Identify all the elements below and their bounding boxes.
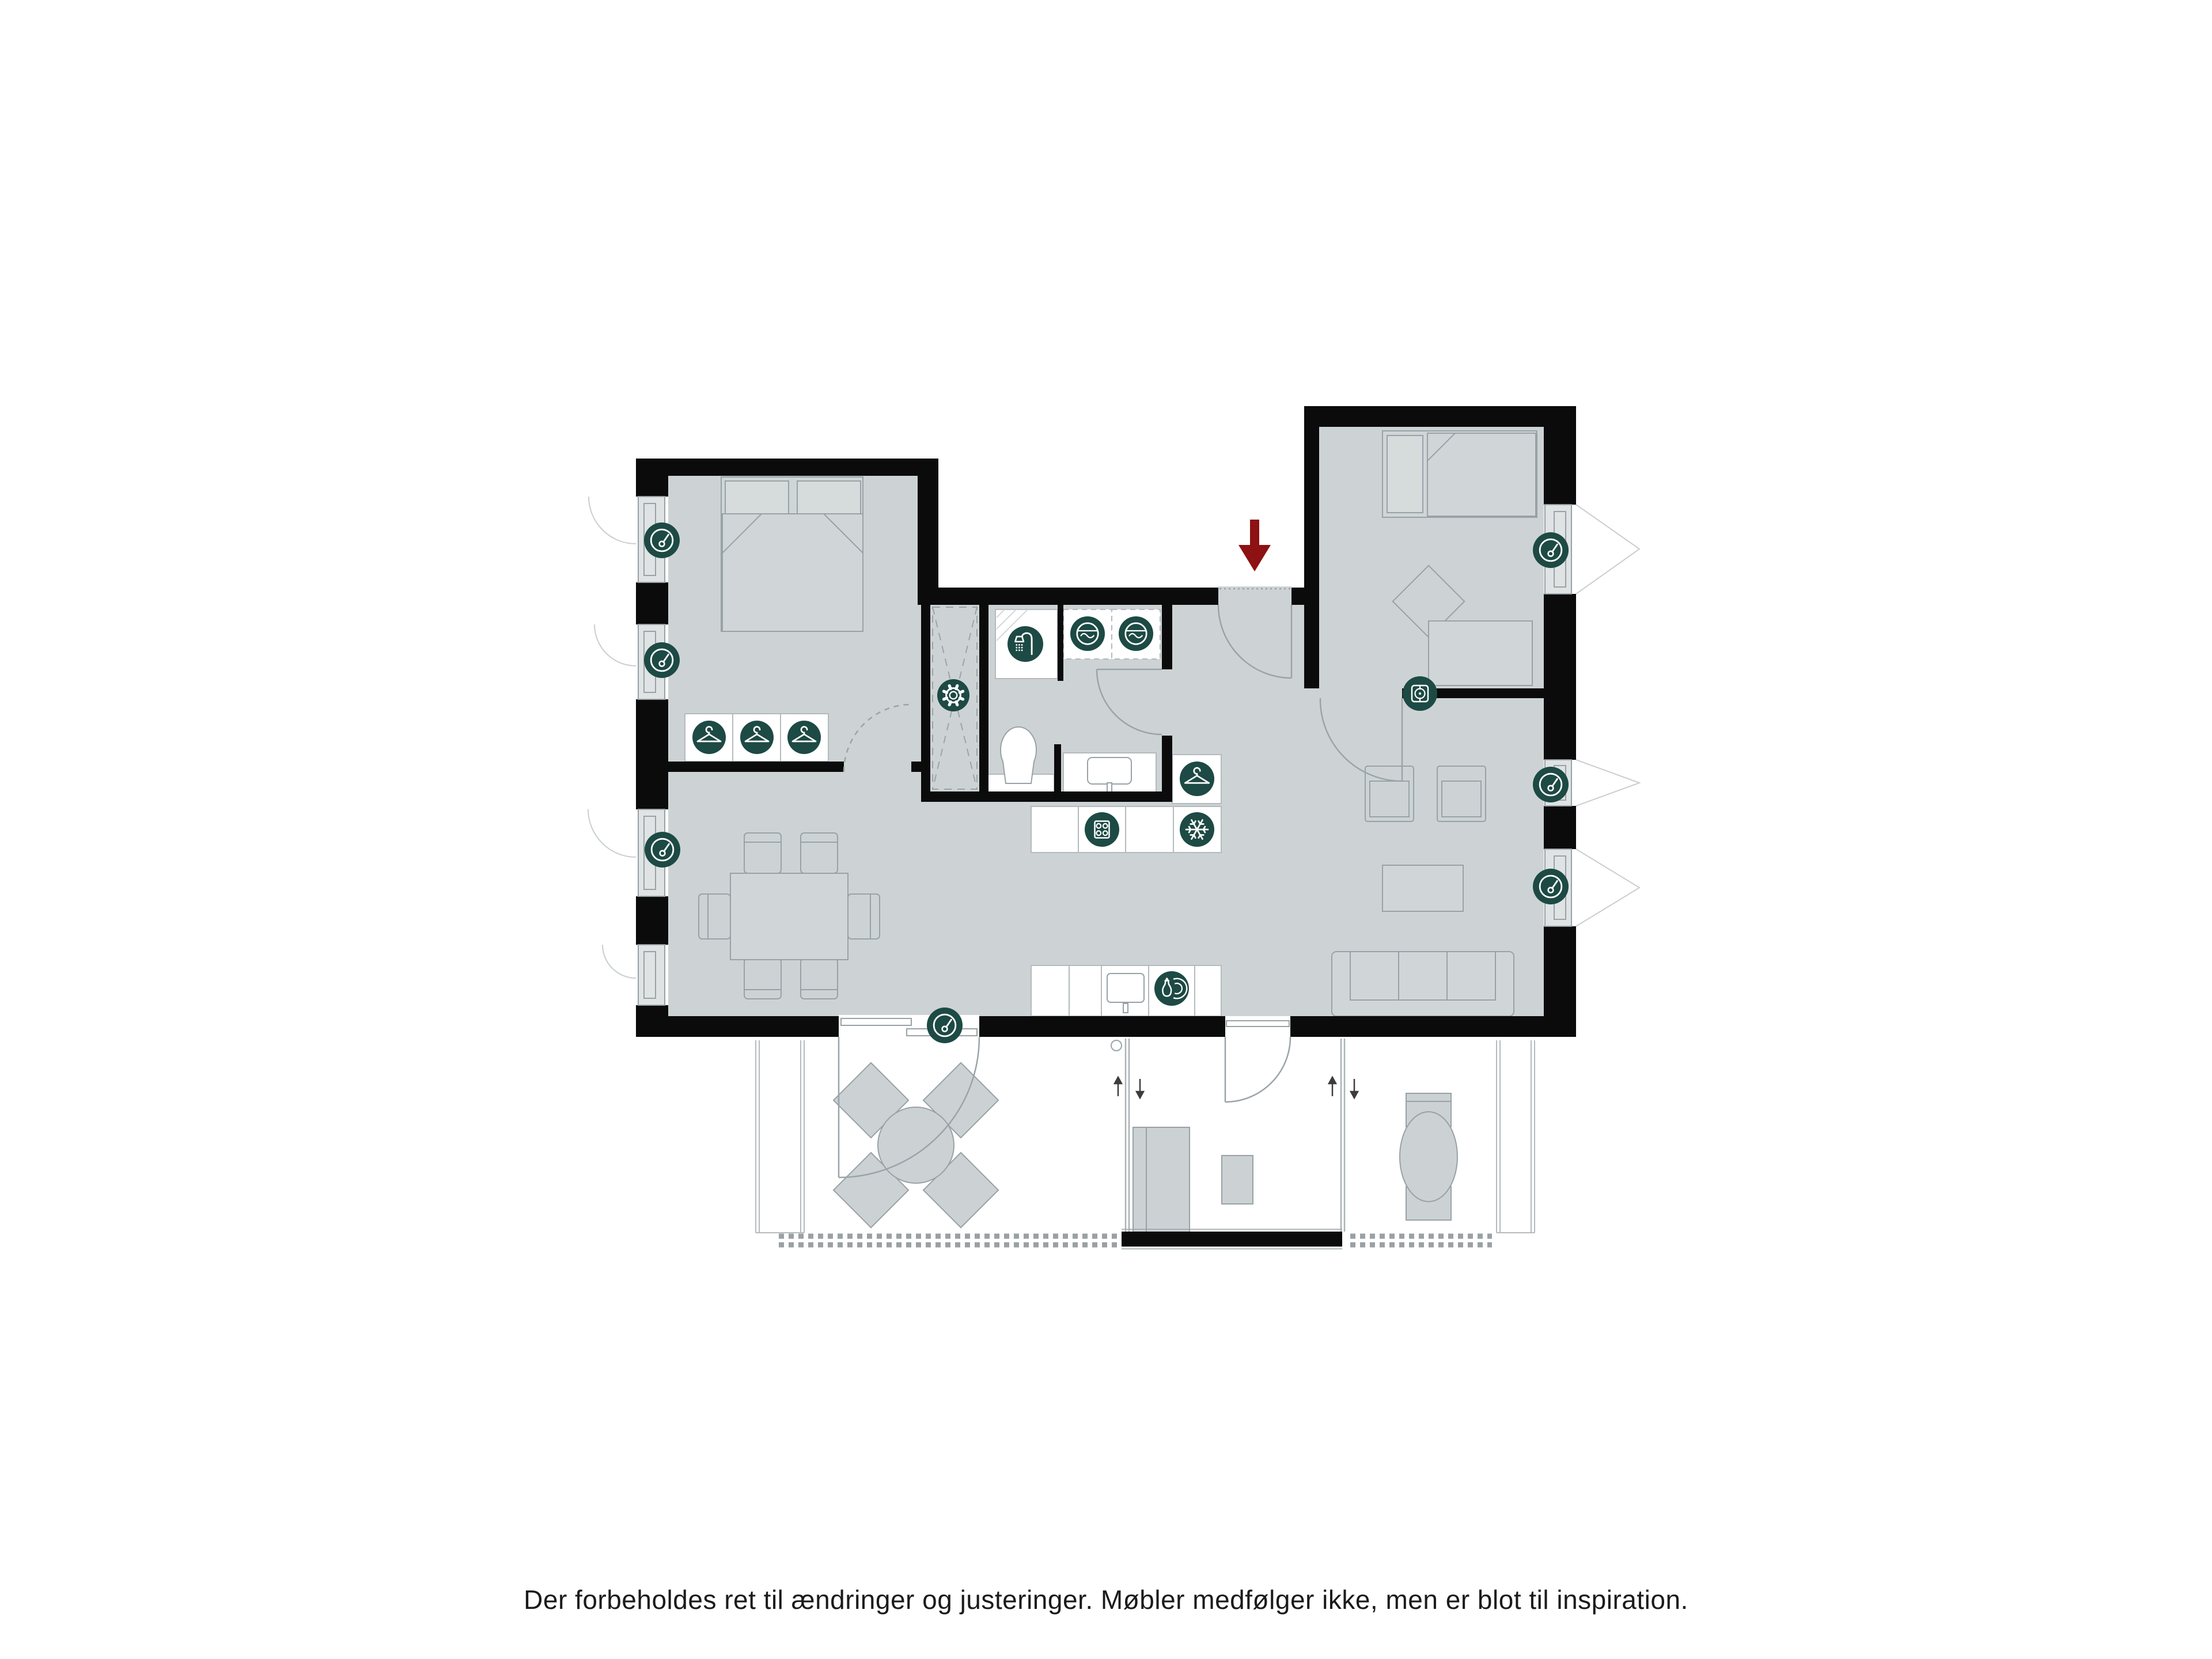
wardrobe-hanger-icon [692,721,726,754]
freezer-snowflake-icon [1180,812,1214,847]
terrace-detail-circle [1111,1040,1122,1051]
power-outlet-icon [1403,676,1437,711]
kitchen-counter [1031,965,1221,1016]
hall-closet-hanger-icon [1180,762,1214,796]
living-sofa [1332,952,1514,1016]
terrace-storage [1133,1127,1253,1232]
radiator-thermostat-icon [645,832,680,868]
living-terrace-door-swing [1225,1037,1290,1102]
bathroom-sink [1063,753,1156,793]
disclaimer-caption: Der forbeholdes ret til ændringer og jus… [0,1584,2212,1615]
terrace-dining-set [834,1063,998,1228]
shower-icon [1007,626,1043,662]
bedroom1-bed [721,477,863,631]
floor-plan [0,0,2212,1659]
kitchen-tap [1123,1003,1128,1013]
terrace-coffee-set [1400,1093,1457,1220]
washing-machine-icon [1070,616,1105,651]
radiator-thermostat-icon [1533,767,1569,802]
radiator-thermostat-icon [644,522,680,558]
wardrobe-hanger-icon [787,721,821,754]
slide-arrows [1115,1077,1358,1098]
radiator-thermostat-icon [927,1007,963,1043]
radiator-thermostat-icon [644,642,680,678]
kitchen-sink [1107,974,1144,1002]
radiator-thermostat-icon [1533,869,1569,904]
bedroom2-bed [1382,431,1537,517]
dishwasher-icon [1154,971,1189,1006]
terrace-south-wall [1122,1232,1342,1247]
entrance-arrow [1238,520,1271,571]
terrace-layer [756,1039,1535,1249]
utility-gear-icon [937,679,969,711]
terrace-door [1225,1017,1290,1036]
living-coffee-table [1382,865,1463,911]
wardrobe-hanger-icon [740,721,774,754]
radiator-thermostat-icon [1533,532,1569,568]
dryer-icon [1119,616,1153,651]
stove-icon [1085,812,1119,847]
